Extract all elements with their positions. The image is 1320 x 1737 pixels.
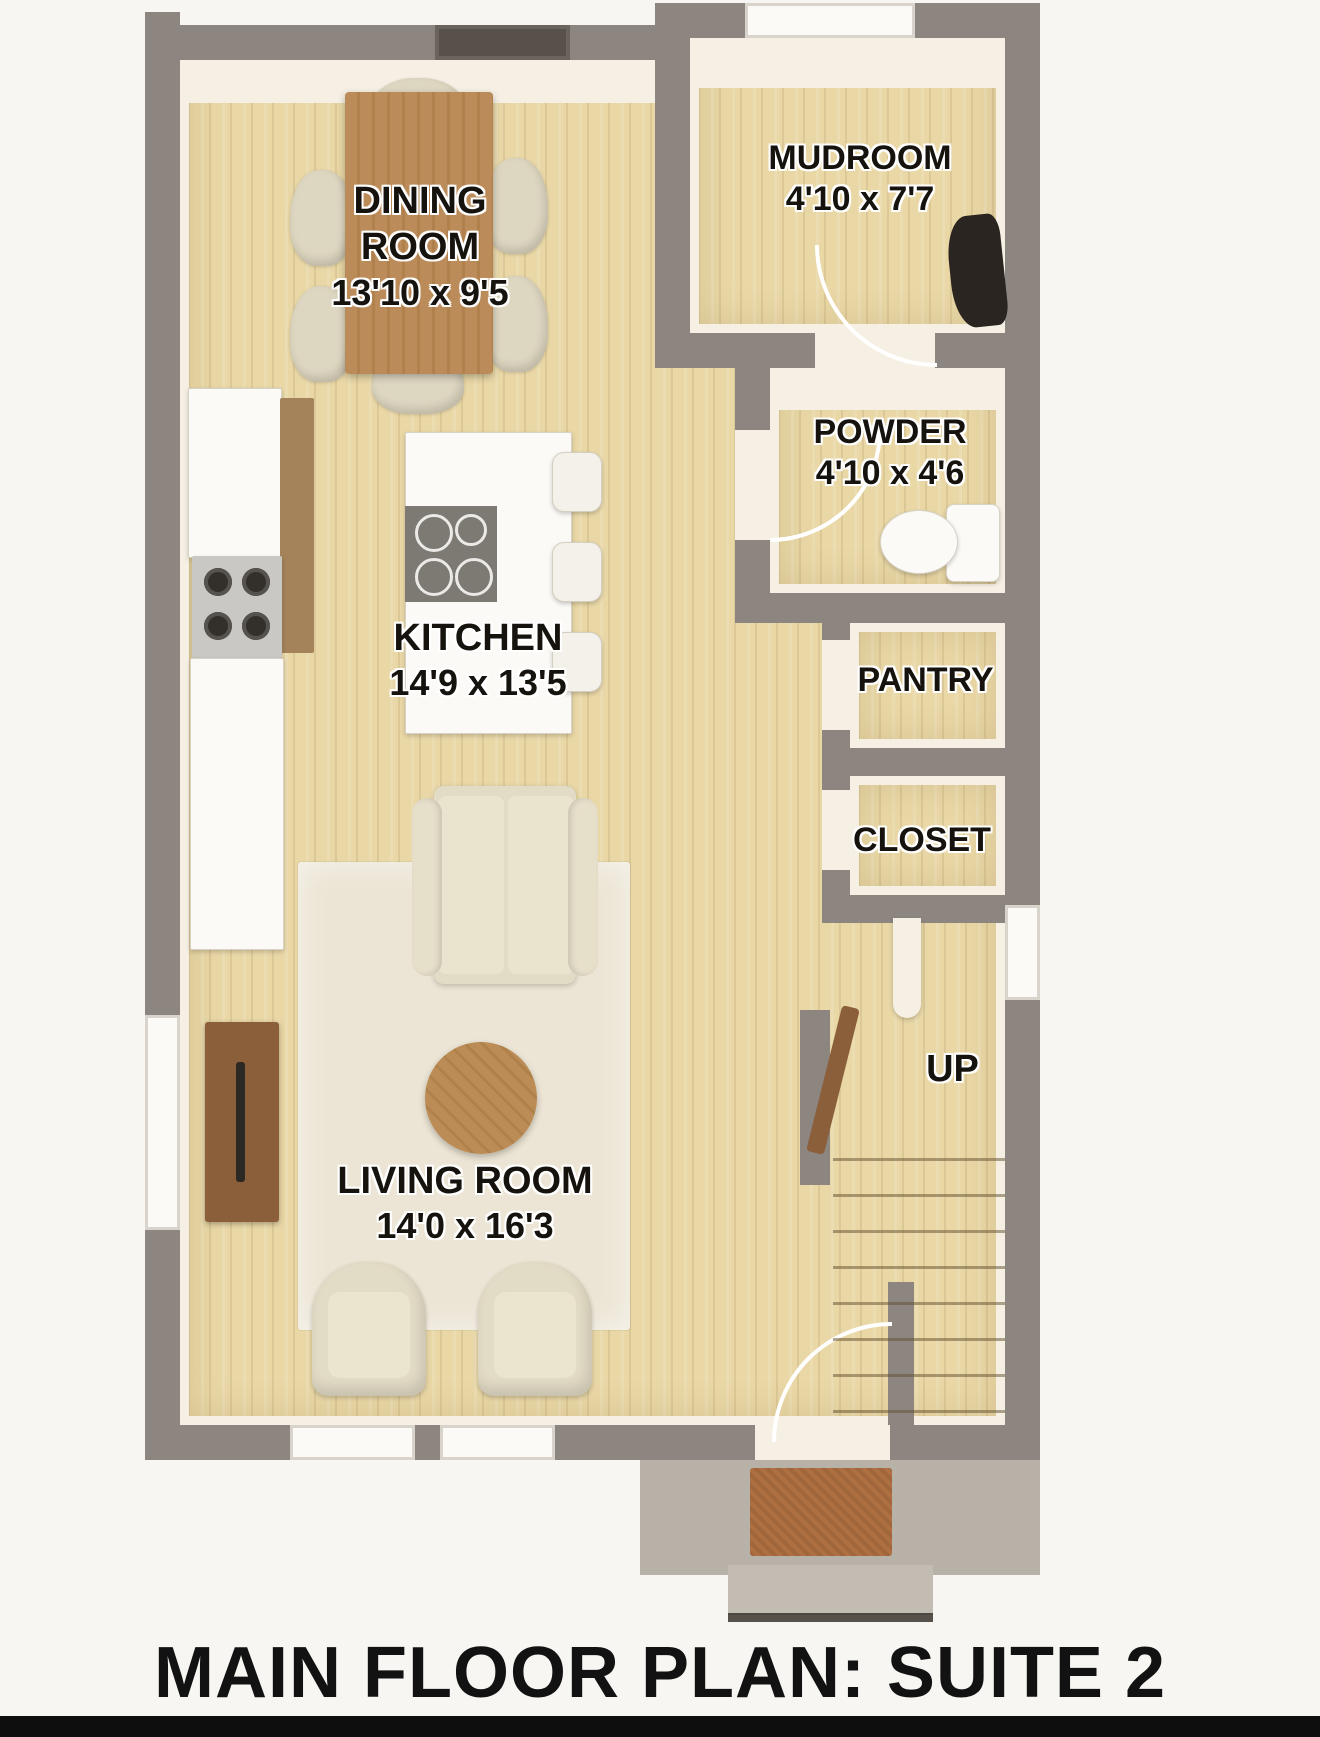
powder-door-opening [735,430,770,540]
armchair-cushion [494,1292,576,1378]
sofa-armrest [568,798,598,976]
window [435,25,570,60]
mudroom-label: MUDROOM 4'10 x 7'7 [735,138,985,221]
room-dimensions: 4'10 x 7'7 [735,179,985,220]
media-console [205,1022,279,1222]
kitchen-label: KITCHEN 14'9 x 13'5 [368,615,588,705]
room-dimensions: 14'9 x 13'5 [368,661,588,705]
room-name: KITCHEN [368,615,588,661]
wall [655,25,690,368]
doormat [750,1468,892,1556]
plan-title: MAIN FLOOR PLAN: SUITE 2 [0,1632,1320,1714]
dining-room-label: DINING ROOM 13'10 x 9'5 [330,178,510,315]
wall [1005,3,1040,1460]
room-name: MUDROOM [735,138,985,179]
sofa [412,786,598,994]
burner [242,568,270,596]
porch-step [728,1565,933,1615]
window [1005,905,1040,1000]
bottom-bar [0,1716,1320,1737]
kitchen-counter [190,658,284,950]
cooktop-burner [415,514,453,552]
bar-stool [552,452,602,512]
armchair-cushion [328,1292,410,1378]
stairs-up-label: UP [905,1046,1000,1092]
sofa-cushion [508,796,574,974]
direction-label: UP [905,1046,1000,1092]
wall [735,593,1010,623]
window [145,1015,180,1230]
mudroom-top-wall-face [690,38,1005,88]
room-name: POWDER [775,412,1005,453]
living-room-label: LIVING ROOM 14'0 x 16'3 [320,1158,610,1248]
room-name: PANTRY [843,660,1008,701]
kitchen-cabinet [280,398,314,653]
closet-label: CLOSET [838,820,1006,861]
porch-step-shadow [728,1613,933,1622]
cooktop-burner [455,514,487,546]
powder-room-label: POWDER 4'10 x 4'6 [775,412,1005,495]
sofa-cushion [438,796,504,974]
burner [204,612,232,640]
room-name: LIVING ROOM [320,1158,610,1204]
burner [242,612,270,640]
window [745,3,915,38]
cooktop-burner [415,558,453,596]
burner [204,568,232,596]
pantry-label: PANTRY [843,660,1008,701]
closet-wall-stub [893,918,921,1018]
coffee-table [425,1042,537,1154]
sofa-armrest [412,798,442,976]
room-dimensions: 14'0 x 16'3 [320,1204,610,1248]
wall [145,12,180,1460]
powder-top-wall-face [770,368,1005,410]
staircase-treads [833,1125,1005,1423]
room-dimensions: 13'10 x 9'5 [330,271,510,315]
window [440,1425,555,1460]
wall [145,25,690,60]
armchair [312,1262,426,1396]
cooktop-burner [455,558,493,596]
floor-plan-image: DINING ROOM 13'10 x 9'5 MUDROOM 4'10 x 7… [0,0,1320,1737]
window [290,1425,415,1460]
console-handle [236,1062,245,1182]
room-dimensions: 4'10 x 4'6 [775,453,1005,494]
range [192,556,282,658]
room-name: DINING [330,178,510,224]
cooktop [405,506,497,602]
refrigerator [188,388,282,558]
wall [822,748,1010,776]
toilet-bowl [880,510,958,574]
room-name: CLOSET [838,820,1006,861]
room-name: ROOM [330,224,510,270]
bar-stool [552,542,602,602]
armchair [478,1262,592,1396]
